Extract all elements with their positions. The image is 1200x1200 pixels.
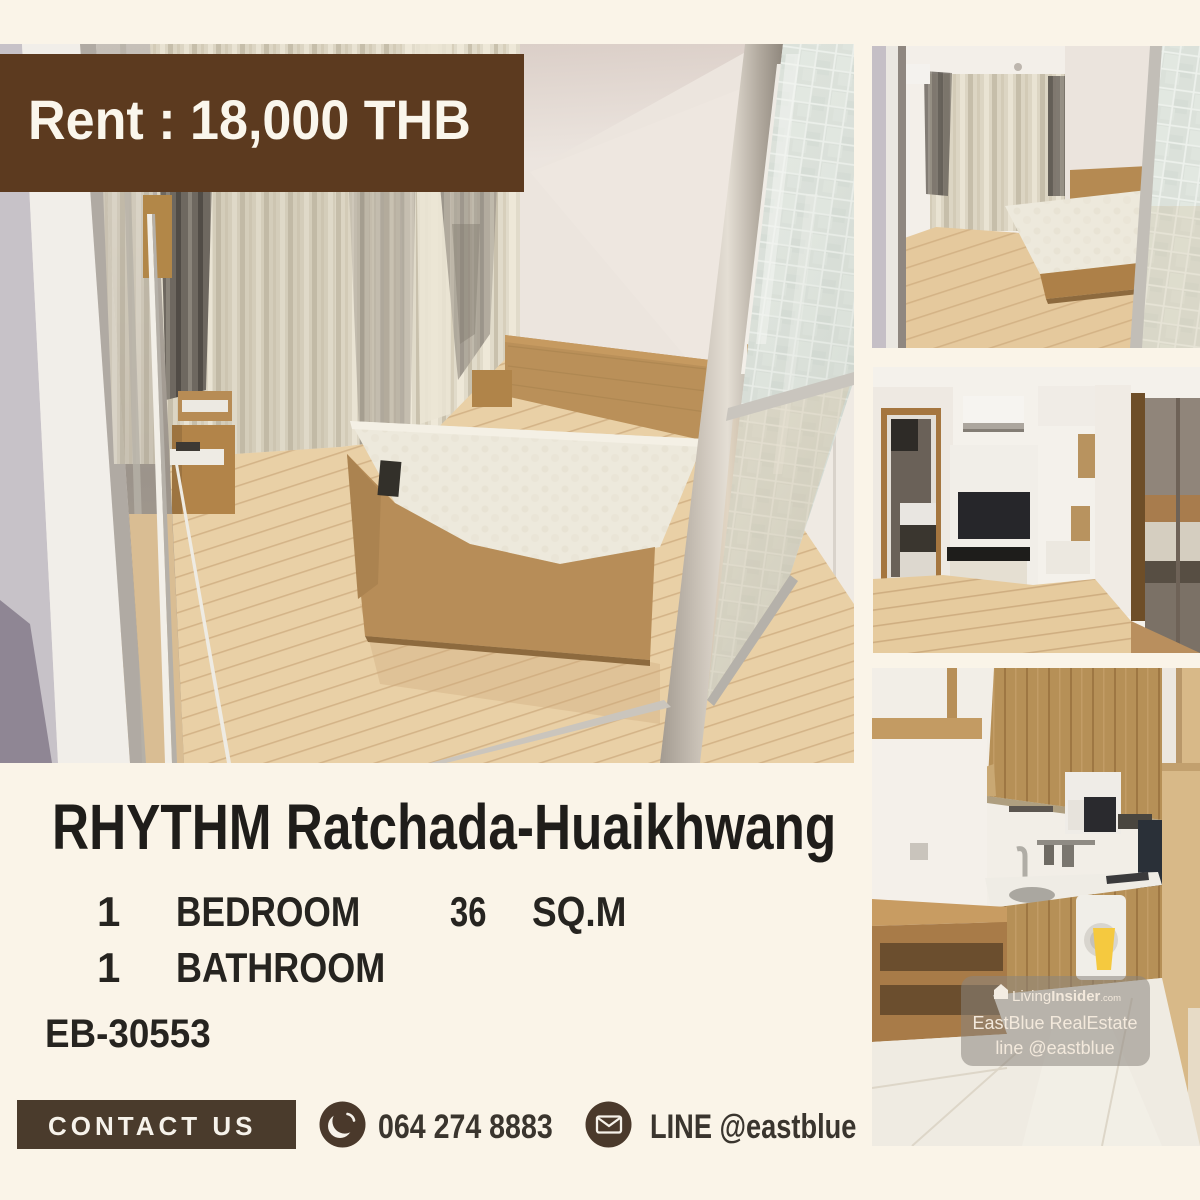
svg-text:EastBlue RealEstate: EastBlue RealEstate	[972, 1013, 1137, 1033]
svg-text:line @eastblue: line @eastblue	[995, 1038, 1114, 1058]
